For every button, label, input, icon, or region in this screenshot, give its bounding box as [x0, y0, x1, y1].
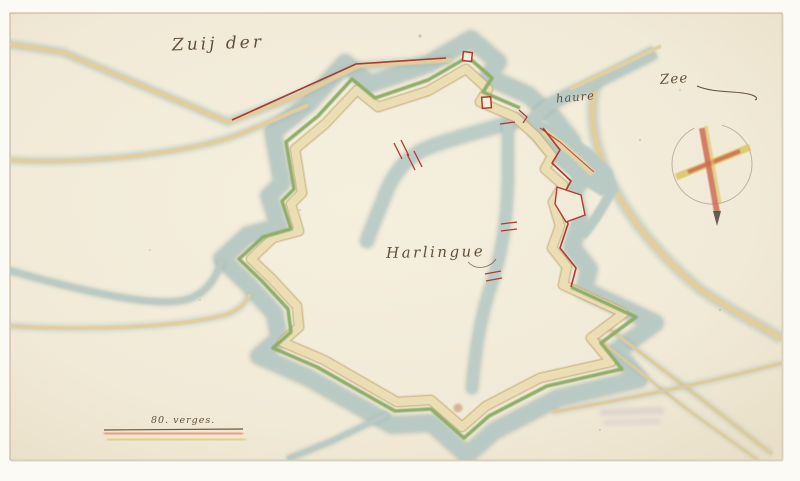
speck — [719, 309, 721, 311]
map-photograph: Zuij der Zee haure Harlingue 80. verges. — [0, 0, 800, 481]
speck — [149, 249, 151, 251]
speck — [299, 209, 301, 211]
north-gate-red-square — [462, 52, 472, 62]
speck — [418, 34, 421, 37]
label-zuiderzee-2: Zee — [658, 70, 688, 88]
label-scale: 80. verges. — [151, 415, 215, 426]
scale-bar — [104, 429, 246, 440]
speck — [199, 299, 201, 301]
speck — [599, 429, 601, 431]
harbor-gate-red-square — [482, 97, 492, 109]
scale-bar-red-band — [104, 433, 243, 434]
label-zuiderzee-1: Zuij der — [171, 32, 265, 55]
label-city: Harlingue — [385, 242, 485, 262]
stain-spot — [454, 404, 463, 413]
scale-bar-yellow-band — [107, 439, 246, 440]
speck — [639, 139, 641, 141]
map-canvas: Zuij der Zee haure Harlingue 80. verges. — [0, 0, 800, 481]
speck — [679, 89, 681, 91]
